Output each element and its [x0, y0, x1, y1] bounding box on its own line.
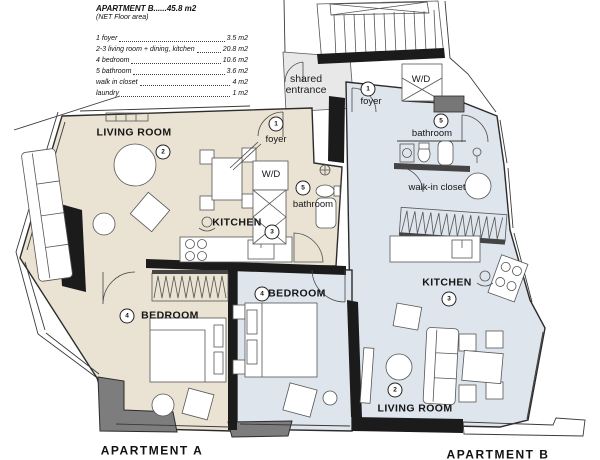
label-bedroom-b: BEDROOM: [268, 288, 326, 299]
label-living-room-b: LIVING ROOM: [378, 403, 453, 414]
room-number-badge: 4: [120, 309, 135, 324]
floor-plan: APARTMENT B......45.8 m2 (NET Floor area…: [0, 0, 600, 460]
legend-row: 2-3 living room + dining, kitchen20.8 m2: [96, 44, 248, 55]
room-number-badge: 5: [296, 181, 311, 196]
label-wd-b: W/D: [412, 75, 430, 85]
armchair-b: [393, 303, 422, 330]
label-bathroom-b: bathroom: [412, 129, 452, 139]
label-living-room-a: LIVING ROOM: [97, 127, 172, 138]
room-number-badge: 2: [156, 145, 171, 160]
stool-a2: [152, 394, 174, 416]
label-wd-a: W/D: [262, 170, 280, 180]
legend-subtitle: (NET Floor area): [96, 14, 248, 21]
stool-b: [323, 391, 337, 405]
label-bedroom-a: BEDROOM: [141, 310, 199, 321]
room-number-badge: 3: [442, 292, 457, 307]
room-number-badge: 5: [434, 114, 449, 129]
legend-title: APARTMENT B......45.8 m2: [96, 4, 248, 13]
legend-row: laundry1 m2: [96, 88, 248, 99]
label-walk-in-closet-b: walk-in closet: [408, 183, 465, 193]
label-foyer-a: foyer: [265, 135, 286, 145]
round-table-b: [386, 354, 412, 380]
room-number-badge: 1: [361, 82, 376, 97]
room-number-badge: 1: [269, 117, 284, 132]
stool-a: [93, 213, 115, 235]
bed-a: [150, 318, 226, 382]
bed-b: [233, 303, 317, 377]
shared-entrance-label: shared entrance: [286, 74, 327, 96]
legend: APARTMENT B......45.8 m2 (NET Floor area…: [96, 4, 248, 99]
legend-row: 5 bathroom3.6 m2: [96, 66, 248, 77]
legend-row: 4 bedroom10.6 m2: [96, 55, 248, 66]
label-bathroom-a: bathroom: [293, 200, 333, 210]
sofa-b: [423, 327, 459, 405]
label-kitchen-b: KITCHEN: [422, 277, 471, 288]
room-number-badge: 3: [265, 225, 280, 240]
apartment-b-title: APARTMENT B: [447, 449, 550, 460]
round-table-a: [114, 144, 156, 186]
floor-plan-drawing: [0, 0, 600, 460]
washer-b: [434, 96, 464, 112]
legend-row: walk in closet4 m2: [96, 77, 248, 88]
label-foyer-b: foyer: [360, 97, 381, 107]
apartment-a-title: APARTMENT A: [101, 445, 204, 458]
legend-row: 1 foyer3.5 m2: [96, 33, 248, 44]
room-number-badge: 2: [388, 383, 403, 398]
stairwell: [317, 1, 445, 64]
label-kitchen-a: KITCHEN: [212, 217, 261, 228]
